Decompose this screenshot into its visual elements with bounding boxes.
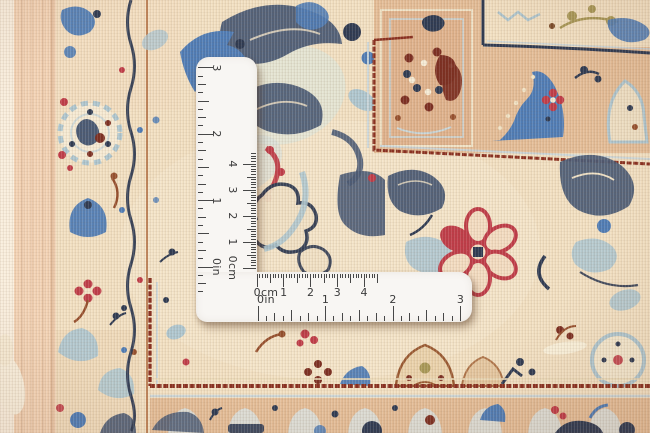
ruler-vertical-arm [196, 57, 257, 300]
ruler-horizontal-cm-scale: 0cm1234 [0, 0, 650, 433]
photo-canvas: 3210in 43210cm 0cm1234 0in123 [0, 0, 650, 433]
ruler-vertical-inch-scale: 3210in [0, 0, 650, 433]
ruler-horizontal-arm [196, 272, 472, 322]
ruler-vertical-cm-scale: 43210cm [0, 0, 650, 433]
measuring-square: 3210in 43210cm 0cm1234 0in123 [0, 0, 650, 433]
ruler-horizontal-inch-scale: 0in123 [0, 0, 650, 433]
